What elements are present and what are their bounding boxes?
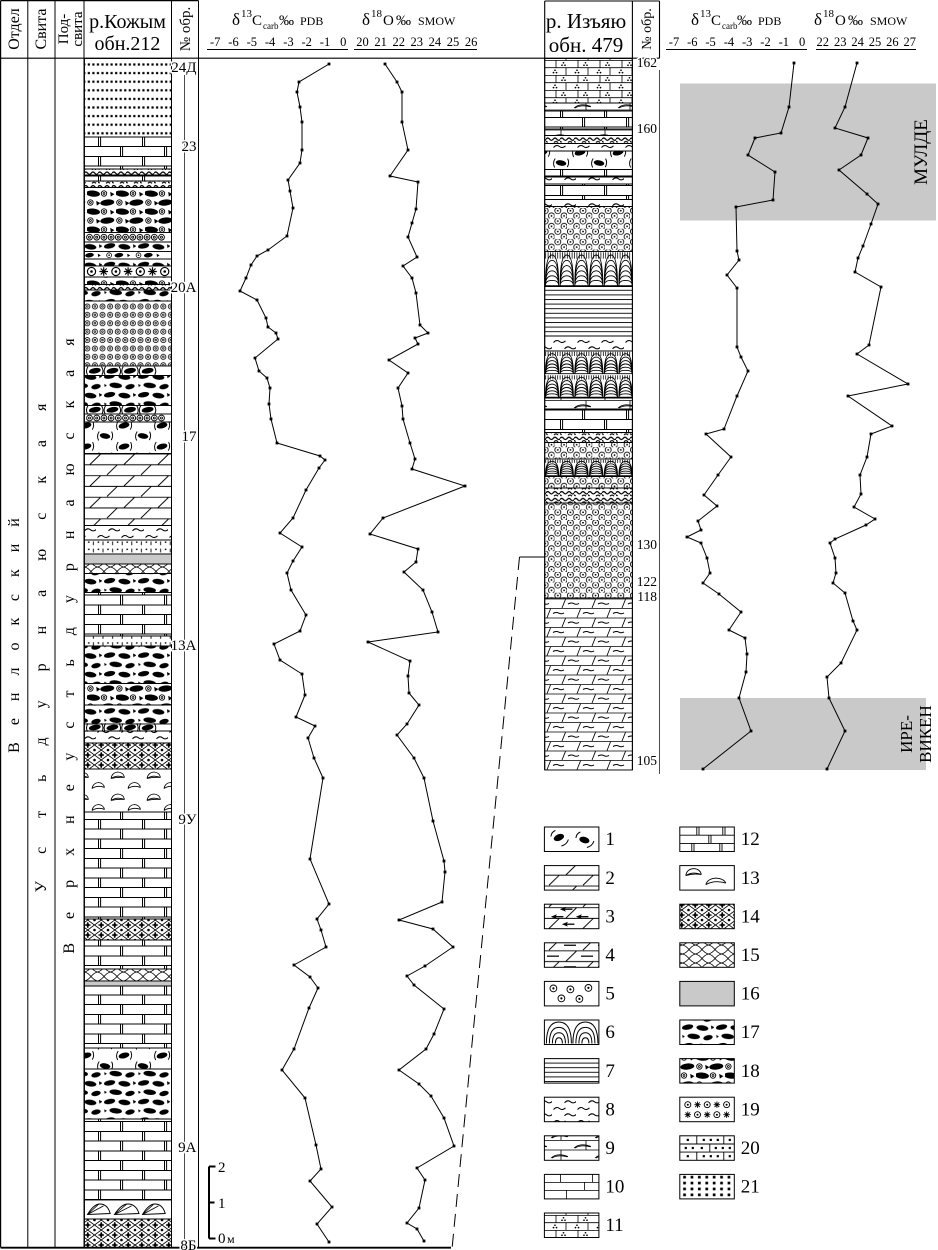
svg-text:25: 25 [447,35,460,49]
svg-text:δ: δ [232,10,240,29]
svg-text:160: 160 [637,121,658,136]
svg-text:8: 8 [605,1100,615,1121]
svg-text:O: O [383,13,394,29]
svg-text:13: 13 [241,8,253,20]
svg-text:122: 122 [637,574,657,589]
svg-text:-7: -7 [210,35,220,49]
svg-text:13: 13 [741,868,760,889]
svg-text:O: O [835,13,846,29]
svg-text:13: 13 [700,8,712,20]
svg-text:PDB: PDB [758,14,781,28]
svg-text:0: 0 [799,35,805,49]
svg-text:10: 10 [605,1177,624,1198]
svg-text:22: 22 [817,35,830,49]
svg-text:Свита: Свита [33,8,50,49]
svg-text:δ: δ [362,10,370,29]
svg-text:carb: carb [722,21,738,31]
svg-text:24Д: 24Д [171,60,196,76]
svg-text:SMOW: SMOW [418,14,456,28]
svg-text:20: 20 [356,35,369,49]
svg-text:‰: ‰ [848,13,863,29]
svg-text:Верхнеустьдурнаюская: Верхнеустьдурнаюская [61,314,78,953]
svg-text:-3: -3 [283,35,293,49]
svg-text:PDB: PDB [300,14,323,28]
svg-text:24: 24 [429,35,442,49]
svg-text:δ: δ [691,10,699,29]
svg-text:-4: -4 [265,35,276,49]
svg-text:5: 5 [605,984,615,1005]
svg-text:9А: 9А [178,1140,197,1156]
svg-text:SMOW: SMOW [870,14,908,28]
svg-text:1: 1 [218,1196,226,1212]
svg-text:20А: 20А [171,280,197,296]
svg-text:МУЛДЕ: МУЛДЕ [911,119,932,185]
svg-text:р. Изъяю: р. Изъяю [546,9,626,33]
svg-text:23: 23 [182,139,197,155]
svg-text:2: 2 [218,1160,226,1176]
svg-text:-1: -1 [779,35,789,49]
svg-text:105: 105 [637,753,658,768]
svg-text:р.Кожым: р.Кожым [89,11,166,33]
svg-text:130: 130 [637,537,658,552]
svg-text:2: 2 [605,868,615,889]
svg-text:‰: ‰ [396,13,411,29]
svg-text:20: 20 [741,1138,760,1159]
svg-text:27: 27 [904,35,917,49]
svg-text:8Б: 8Б [180,1238,196,1250]
svg-text:6: 6 [605,1022,615,1043]
svg-text:обн. 479: обн. 479 [549,33,623,57]
svg-text:17: 17 [741,1022,760,1043]
svg-text:№ обр.: № обр. [640,8,655,49]
svg-text:162: 162 [637,55,657,70]
svg-text:ИРЕ-: ИРЕ- [897,715,916,753]
svg-text:Отдел: Отдел [6,8,23,50]
svg-text:26: 26 [886,35,899,49]
svg-text:-4: -4 [724,35,735,49]
svg-text:-6: -6 [228,35,238,49]
svg-text:0: 0 [218,1231,226,1247]
svg-text:-1: -1 [320,35,330,49]
svg-text:21: 21 [374,35,387,49]
svg-text:Венлокский: Венлокский [6,501,23,753]
svg-text:13А: 13А [171,638,197,654]
svg-text:118: 118 [637,589,657,604]
svg-text:м: м [227,1232,235,1246]
svg-text:18: 18 [741,1061,760,1082]
svg-text:-7: -7 [669,35,679,49]
svg-text:14: 14 [741,907,761,928]
svg-text:25: 25 [869,35,882,49]
svg-text:δ: δ [814,10,822,29]
svg-text:12: 12 [741,829,760,850]
svg-text:24: 24 [851,35,864,49]
svg-text:C: C [252,13,262,29]
svg-text:19: 19 [741,1100,760,1121]
svg-text:18: 18 [371,8,383,20]
svg-text:23: 23 [834,35,847,49]
svg-text:23: 23 [411,35,424,49]
svg-text:-5: -5 [247,35,257,49]
svg-text:-3: -3 [742,35,752,49]
svg-text:9У: 9У [178,812,197,828]
svg-text:свита: свита [70,11,86,47]
svg-text:1: 1 [605,829,615,850]
svg-text:-5: -5 [705,35,715,49]
svg-text:-2: -2 [301,35,311,49]
svg-text:7: 7 [605,1061,615,1082]
svg-text:0: 0 [340,35,346,49]
svg-text:18: 18 [823,8,835,20]
svg-text:-2: -2 [760,35,770,49]
svg-text:11: 11 [605,1215,623,1236]
svg-text:15: 15 [741,945,760,966]
svg-text:22: 22 [392,35,405,49]
svg-text:17: 17 [182,429,198,445]
svg-text:carb: carb [263,21,279,31]
svg-text:‰: ‰ [737,13,752,29]
svg-text:Устьдурнаюская: Устьдурнаюская [33,375,50,893]
svg-text:C: C [711,13,721,29]
svg-text:-6: -6 [687,35,697,49]
svg-text:№ обр.: № обр. [178,7,194,51]
svg-text:9: 9 [605,1138,615,1159]
svg-text:21: 21 [741,1177,760,1198]
svg-text:обн.212: обн.212 [95,33,161,55]
svg-text:‰: ‰ [279,13,294,29]
svg-text:16: 16 [741,984,760,1005]
svg-text:26: 26 [465,35,478,49]
svg-text:4: 4 [605,945,615,966]
svg-text:3: 3 [605,907,615,928]
svg-text:ВИКЕН: ВИКЕН [916,705,935,763]
